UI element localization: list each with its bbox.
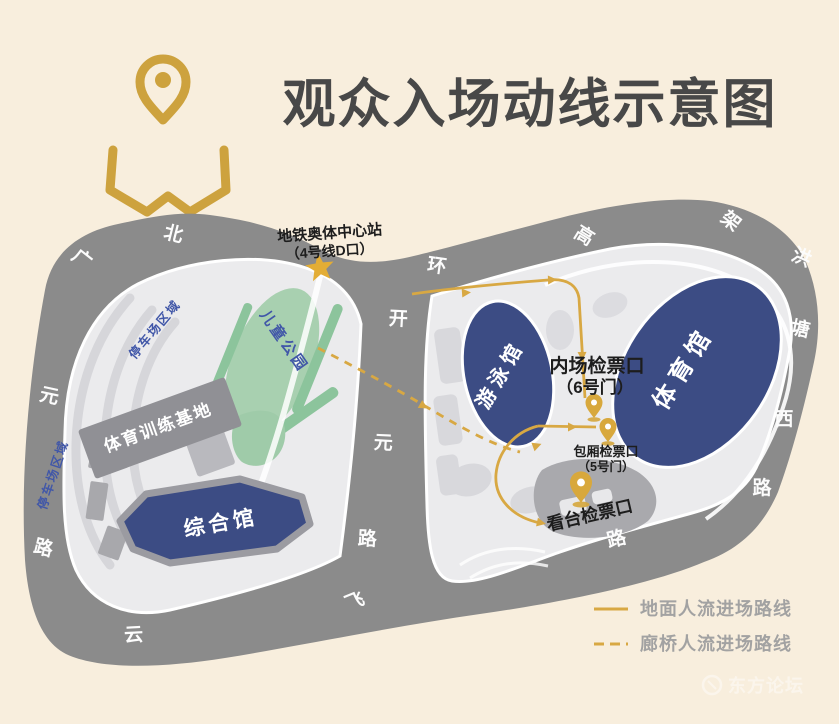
box-gate-number: （5号门） bbox=[578, 459, 635, 474]
watermark-text: 东方论坛 bbox=[728, 675, 804, 696]
map-canvas: 观众入场动线示意图 bbox=[0, 0, 839, 724]
infield-gate-label: 内场检票口 bbox=[549, 354, 644, 377]
schematic-map-page: 观众入场动线示意图 bbox=[0, 0, 839, 724]
road-label: 云 bbox=[124, 625, 144, 647]
legend-bridge-label: 廊桥人流进场路线 bbox=[640, 633, 792, 654]
road-label: 元 bbox=[373, 433, 393, 455]
road-label: 开 bbox=[388, 309, 408, 331]
box-gate-label: 包厢检票口 bbox=[573, 444, 638, 459]
road-label: 西 bbox=[774, 409, 793, 430]
road-label: 路 bbox=[752, 476, 772, 499]
road-label: 环 bbox=[426, 255, 448, 278]
road-label: 路 bbox=[357, 527, 378, 551]
page-title: 观众入场动线示意图 bbox=[283, 75, 778, 134]
infield-gate-number: （6号门） bbox=[556, 377, 633, 397]
legend-ground-label: 地面人流进场路线 bbox=[640, 598, 792, 619]
